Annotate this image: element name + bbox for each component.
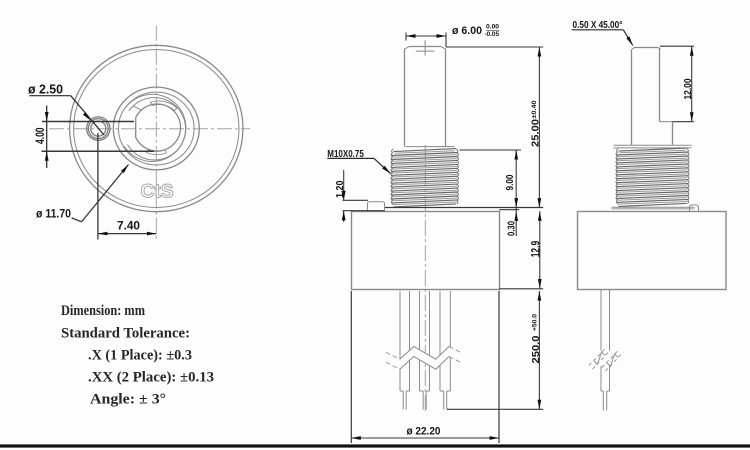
svg-text:7.40: 7.40: [117, 220, 140, 232]
svg-text:9.00: 9.00: [505, 174, 516, 190]
svg-text:+50.0: +50.0: [531, 314, 538, 331]
svg-text:ø 2.50: ø 2.50: [28, 83, 63, 97]
svg-text:25.00: 25.00: [530, 119, 542, 147]
svg-text:CtS: CtS: [141, 182, 174, 203]
svg-text:1.20: 1.20: [334, 180, 346, 198]
svg-text:-0.05: -0.05: [485, 31, 500, 38]
svg-text:Standard Tolerance:: Standard Tolerance:: [61, 326, 190, 342]
svg-text:.X (1 Place): ±0.3: .X (1 Place): ±0.3: [88, 348, 192, 364]
svg-text:250.0: 250.0: [530, 335, 542, 363]
svg-text:ø 11.70: ø 11.70: [36, 209, 71, 221]
svg-text:.XX (2 Place): ±0.13: .XX (2 Place): ±0.13: [88, 370, 214, 386]
svg-text:±0.40: ±0.40: [531, 100, 538, 118]
svg-text:4.00: 4.00: [33, 127, 47, 144]
svg-text:ø 22.20: ø 22.20: [407, 426, 441, 438]
svg-text:0.30: 0.30: [507, 221, 518, 236]
svg-text:Dimension: mm: Dimension: mm: [61, 303, 145, 319]
svg-text:Angle: ± 3°: Angle: ± 3°: [90, 392, 166, 408]
svg-text:12.00: 12.00: [682, 78, 694, 99]
svg-text:12.9: 12.9: [529, 241, 543, 258]
svg-text:ø 6.00: ø 6.00: [452, 25, 482, 37]
svg-text:0.00: 0.00: [486, 24, 499, 31]
